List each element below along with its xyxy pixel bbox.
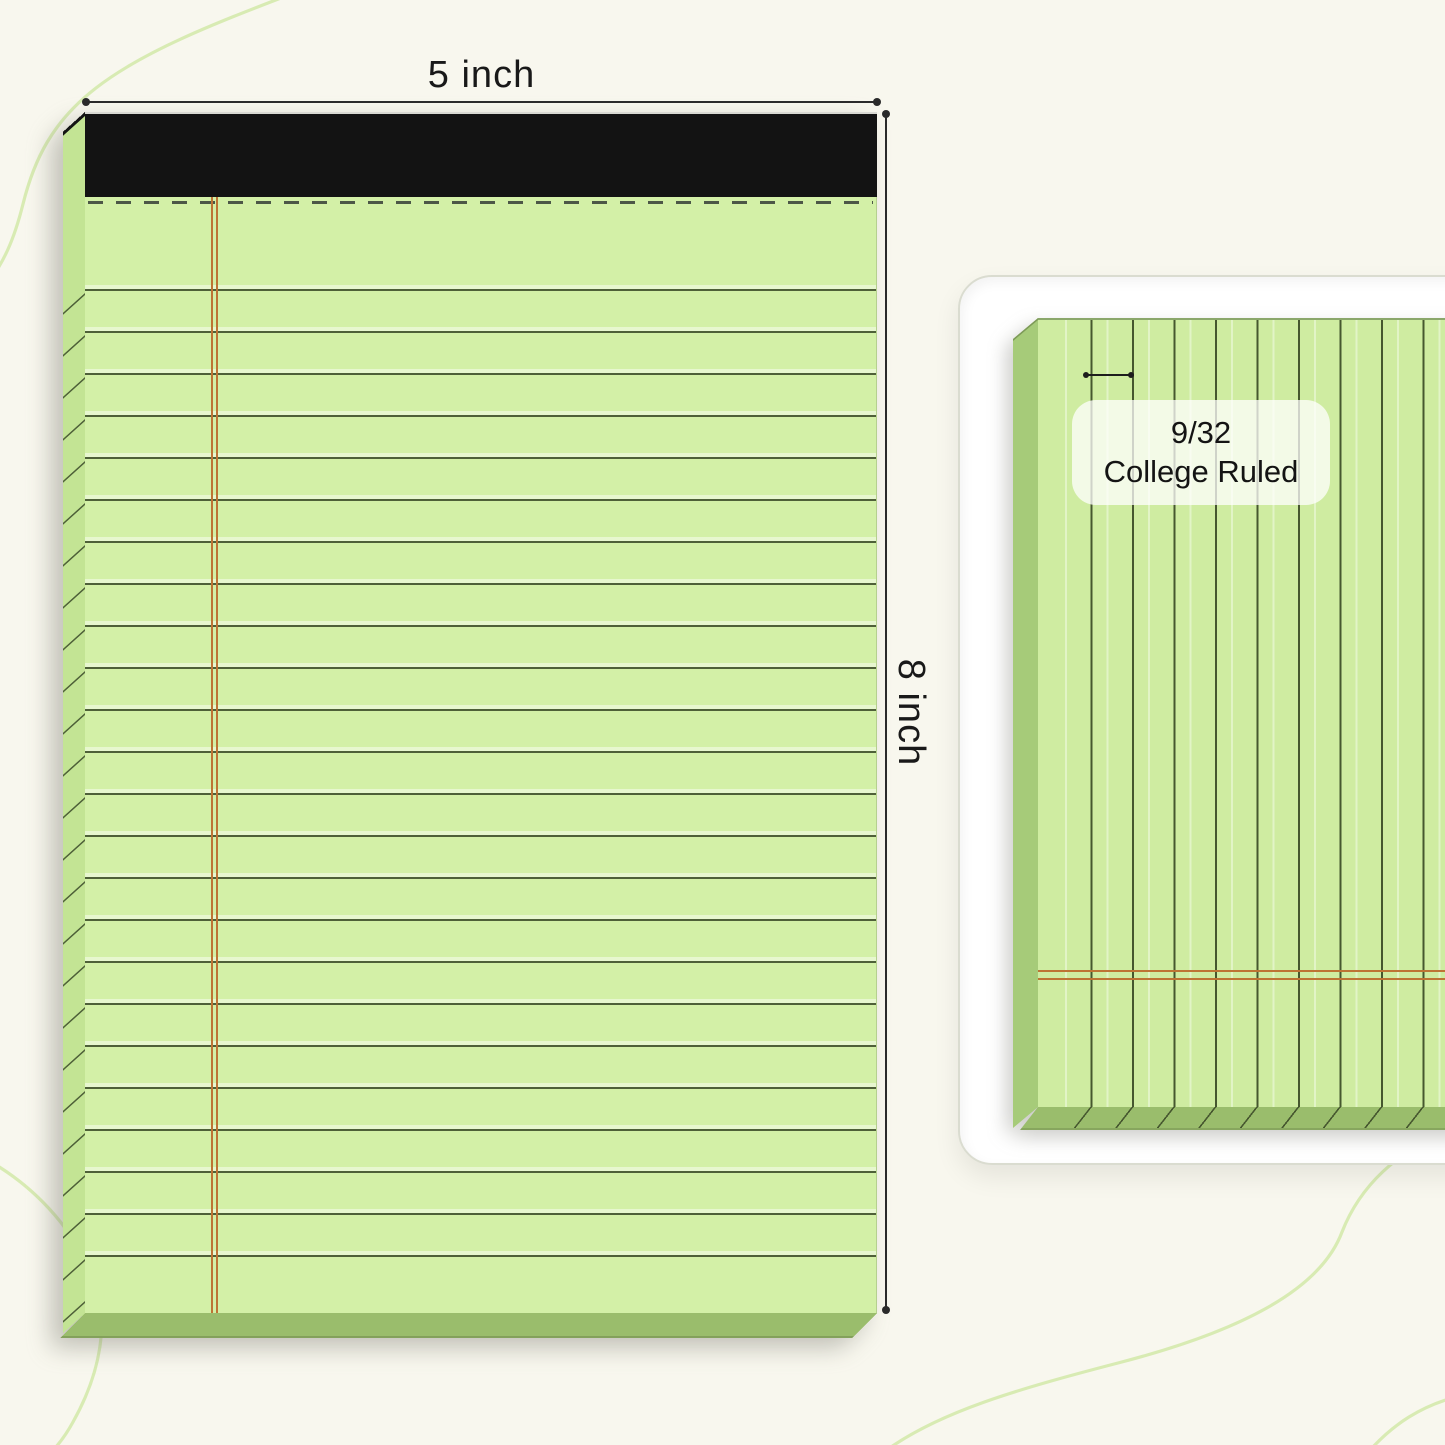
decor-curve-corner [1360, 1394, 1445, 1445]
width-dimension-line [86, 101, 877, 103]
ruling-name: College Ruled [1072, 452, 1330, 491]
detail-pad-left-edge [1013, 318, 1038, 1128]
ruling-detail-card: 9/32 College Ruled [958, 275, 1445, 1165]
detail-margin-line [1038, 970, 1445, 980]
height-dimension-text: 8 inch [890, 658, 933, 765]
line-spacing-marker [1086, 374, 1131, 376]
pad-left-edge [63, 112, 85, 1333]
ruling-label-chip: 9/32 College Ruled [1072, 400, 1330, 505]
product-image: 5 inch 8 inch 9/32 College Ruled [0, 0, 1445, 1445]
margin-line [211, 197, 218, 1313]
pad-left-edge-ticks [63, 293, 85, 1323]
ruled-lines [85, 249, 876, 1259]
perforation-line [88, 201, 873, 204]
height-dimension-line [885, 113, 887, 1311]
ruling-value: 9/32 [1072, 413, 1330, 452]
detail-pad-bottom-edge [1020, 1107, 1445, 1130]
width-dimension-label: 5 inch [86, 54, 877, 97]
pad-paper [85, 197, 877, 1313]
detail-pad-paper: 9/32 College Ruled [1038, 318, 1445, 1107]
decor-curve-bottom-right [868, 1128, 1445, 1445]
pad-binding-strip [85, 112, 877, 197]
pad-bottom-edge [60, 1313, 877, 1338]
detail-pad: 9/32 College Ruled [960, 277, 1445, 1163]
detail-pad-bottom-ticks [1074, 1107, 1445, 1128]
